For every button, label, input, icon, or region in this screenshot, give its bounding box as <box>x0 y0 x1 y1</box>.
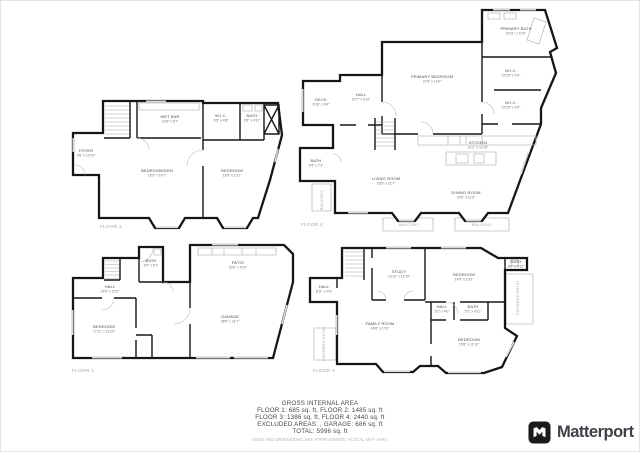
floorplan-sheet: WET BAR10'8" x 6'7"W.I.C.6'5" x 4'8"BATH… <box>0 0 640 452</box>
exterior-walls <box>73 245 293 358</box>
floor-3-caption: FLOOR 3 <box>313 368 335 373</box>
room-label: W.I.C.6'5" x 4'8" <box>214 113 230 123</box>
floor-2-caption: FLOOR 2 <box>100 224 122 229</box>
room-label: BALCONY <box>472 222 492 227</box>
room-label: COVERED PATIO <box>515 281 520 315</box>
room-label: FOYER9'6" x 10'10" <box>77 148 96 158</box>
floor-1-caption: FLOOR 1 <box>72 368 94 373</box>
exterior-walls <box>300 10 557 221</box>
room-label: BEDROOM14'9" x 13'5" <box>453 272 475 282</box>
floorplan-floor-3: STUDY13'10" x 12'10"BEDROOM14'9" x 13'5"… <box>306 240 554 378</box>
floorplan-floor-1: BATH8'9" x 5'1"PATIO30'6" x 9'10"HALL14'… <box>62 240 302 378</box>
room-label: BEDROOM16'0" x 13'2" <box>221 168 243 178</box>
room-label: BALCONY <box>319 190 324 210</box>
floorplan-floor-3-svg: STUDY13'10" x 12'10"BEDROOM14'9" x 13'5"… <box>306 240 554 378</box>
matterport-logo-icon <box>528 421 551 444</box>
room-label: GARAGE28'6" x 21'7" <box>221 314 240 324</box>
matterport-logo: Matterport <box>528 421 634 444</box>
floorplan-floor-1-svg: BATH8'9" x 5'1"PATIO30'6" x 9'10"HALL14'… <box>62 240 302 378</box>
room-label: COVERED PATIO <box>321 327 326 361</box>
floorplan-floor-2-svg: WET BAR10'8" x 6'7"W.I.C.6'5" x 4'8"BATH… <box>62 88 292 234</box>
floorplan-floor-4-svg: PRIMARY BATH15'11" x 10'9"PRIMARY BEDROO… <box>298 4 570 238</box>
room-label: KITCHEN21'2" x 11'10" <box>468 140 489 150</box>
room-label: BEDROOM15'8" x 11'10" <box>458 337 480 347</box>
exterior-walls <box>310 248 527 373</box>
floorplan-floor-2: WET BAR10'8" x 6'7"W.I.C.6'5" x 4'8"BATH… <box>62 88 292 234</box>
floorplan-floor-4: PRIMARY BATH15'11" x 10'9"PRIMARY BEDROO… <box>298 4 570 238</box>
room-label: BEDROOM17'11" x 13'10" <box>93 324 116 334</box>
room-label: BALCONY <box>399 222 419 227</box>
matterport-logo-text: Matterport <box>557 423 634 442</box>
room-label: WET BAR10'8" x 6'7" <box>160 114 179 124</box>
floor-4-caption: FLOOR 4 <box>301 222 323 227</box>
